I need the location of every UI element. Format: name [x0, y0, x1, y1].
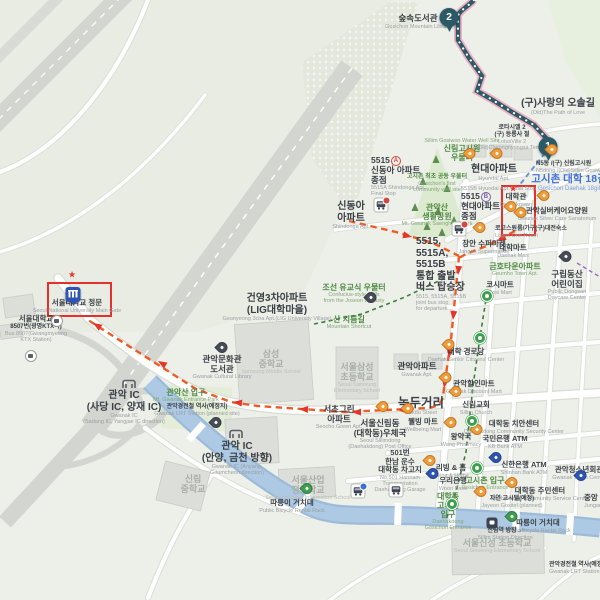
subway-icon-icon — [487, 518, 498, 529]
trail-point-5-icon — [446, 498, 458, 510]
daehakgwan-pin-2[interactable] — [516, 207, 527, 218]
wang-pharmacy-pin-icon — [443, 415, 459, 431]
lrt-pin[interactable] — [211, 417, 222, 428]
trail-point-3-icon — [466, 415, 478, 427]
living-home-pin-icon — [422, 453, 438, 469]
wellbeing-pin[interactable] — [403, 403, 414, 414]
bus-stop-nokdu-2[interactable] — [389, 483, 404, 498]
n5dong-pin-icon — [544, 142, 560, 158]
trail-point-5[interactable] — [446, 498, 458, 510]
jangan-pin-icon — [472, 220, 488, 236]
bus-stop-snu-1-icon — [51, 315, 63, 327]
hyundai-pin-1-icon — [462, 146, 478, 162]
wang-pharmacy-pin[interactable] — [446, 417, 457, 428]
trail-point-2[interactable] — [474, 332, 486, 344]
jangan-pin[interactable] — [475, 222, 486, 233]
interchange-icon-anyang-icon — [229, 426, 243, 436]
woori-bank-pin-icon — [425, 466, 441, 482]
interchange-icon-anyang[interactable] — [229, 426, 243, 436]
snu-gate-pin-icon — [66, 287, 81, 302]
bus-stop-snu-2-icon — [25, 350, 37, 362]
subway-icon[interactable] — [487, 518, 498, 529]
church-pin[interactable] — [451, 386, 462, 397]
trail-point-3[interactable] — [466, 415, 478, 427]
map-pins: 21★★ — [0, 0, 600, 600]
map-canvas[interactable]: 숲속도서관Gosichon Mountain Library(구)사랑의 오솔길… — [0, 0, 600, 600]
bus-joint-stop[interactable] — [452, 222, 467, 237]
youth-center-pin-icon — [573, 468, 589, 484]
interchange-icon-sadang-icon — [122, 376, 136, 386]
trail-point-2-icon — [474, 332, 486, 344]
n5dong-pin[interactable] — [547, 144, 558, 155]
jayeon-pin[interactable] — [476, 486, 487, 497]
silver-care-pin-icon — [536, 188, 552, 204]
post-office-pin[interactable] — [378, 401, 389, 412]
bus-joint-stop-icon — [452, 222, 467, 237]
bus-stop-snu-1[interactable] — [51, 315, 63, 327]
trail-point-4[interactable] — [471, 462, 483, 474]
interchange-icon-sadang[interactable] — [122, 376, 136, 386]
youth-center-pin[interactable] — [576, 470, 587, 481]
bike-rack-pin-west[interactable] — [302, 483, 313, 494]
hyundai-pin-2[interactable] — [492, 148, 503, 159]
route-marker-2-icon: 2 — [440, 8, 459, 27]
bike-rack-pin-east-icon — [504, 509, 520, 525]
bus-stop-nokdu-1-icon — [351, 484, 366, 499]
cultural-library-pin[interactable] — [217, 342, 228, 353]
discount-mart-pin-icon — [438, 370, 454, 386]
lrt-pin-icon — [208, 415, 224, 431]
discount-mart-pin[interactable] — [441, 372, 452, 383]
woori-bank-pin[interactable] — [428, 468, 439, 479]
daehakgwan-star[interactable]: ★ — [509, 185, 517, 194]
bus-stop-nokdu-1[interactable] — [351, 484, 366, 499]
senior-center-pin[interactable] — [444, 339, 455, 350]
bike-rack-pin-west-icon — [299, 481, 315, 497]
bike-rack-pin-east[interactable] — [507, 511, 518, 522]
church-pin-icon — [448, 384, 464, 400]
daehakgwan-pin-2-icon — [513, 205, 529, 221]
snu-gate-star[interactable]: ★ — [68, 271, 76, 280]
shinhan-bank-pin-icon — [488, 450, 504, 466]
living-home-pin[interactable] — [425, 455, 436, 466]
senior-center-pin-icon — [441, 337, 457, 353]
snu-gate-pin[interactable] — [66, 287, 81, 302]
daycare-pin[interactable] — [561, 251, 572, 262]
cultural-library-pin-icon — [214, 340, 230, 356]
trail-point-1[interactable] — [481, 290, 493, 302]
daehakgwan-star-icon: ★ — [509, 185, 517, 194]
bus-terminal-shindonga-icon — [374, 198, 389, 213]
community-center-pin-icon — [504, 475, 520, 491]
joseon-well-pin[interactable] — [366, 292, 377, 303]
community-center-pin[interactable] — [507, 477, 518, 488]
shinhan-bank-pin[interactable] — [491, 452, 502, 463]
trail-point-1-icon — [481, 290, 493, 302]
bus-terminal-shindonga[interactable] — [374, 198, 389, 213]
jayeon-pin-icon — [473, 484, 489, 500]
snu-gate-star-icon: ★ — [68, 271, 76, 280]
post-office-pin-icon — [375, 399, 391, 415]
hyundai-pin-2-icon — [489, 146, 505, 162]
bus-stop-nokdu-2-icon — [389, 483, 404, 498]
route-marker-2[interactable]: 2 — [440, 8, 459, 27]
bus-stop-snu-2[interactable] — [25, 350, 37, 362]
joseon-well-pin-icon — [363, 290, 379, 306]
wellbeing-pin-icon — [400, 401, 416, 417]
daycare-pin-icon — [558, 249, 574, 265]
hyundai-pin-1[interactable] — [465, 148, 476, 159]
trail-point-4-icon — [471, 462, 483, 474]
silver-care-pin[interactable] — [539, 190, 550, 201]
